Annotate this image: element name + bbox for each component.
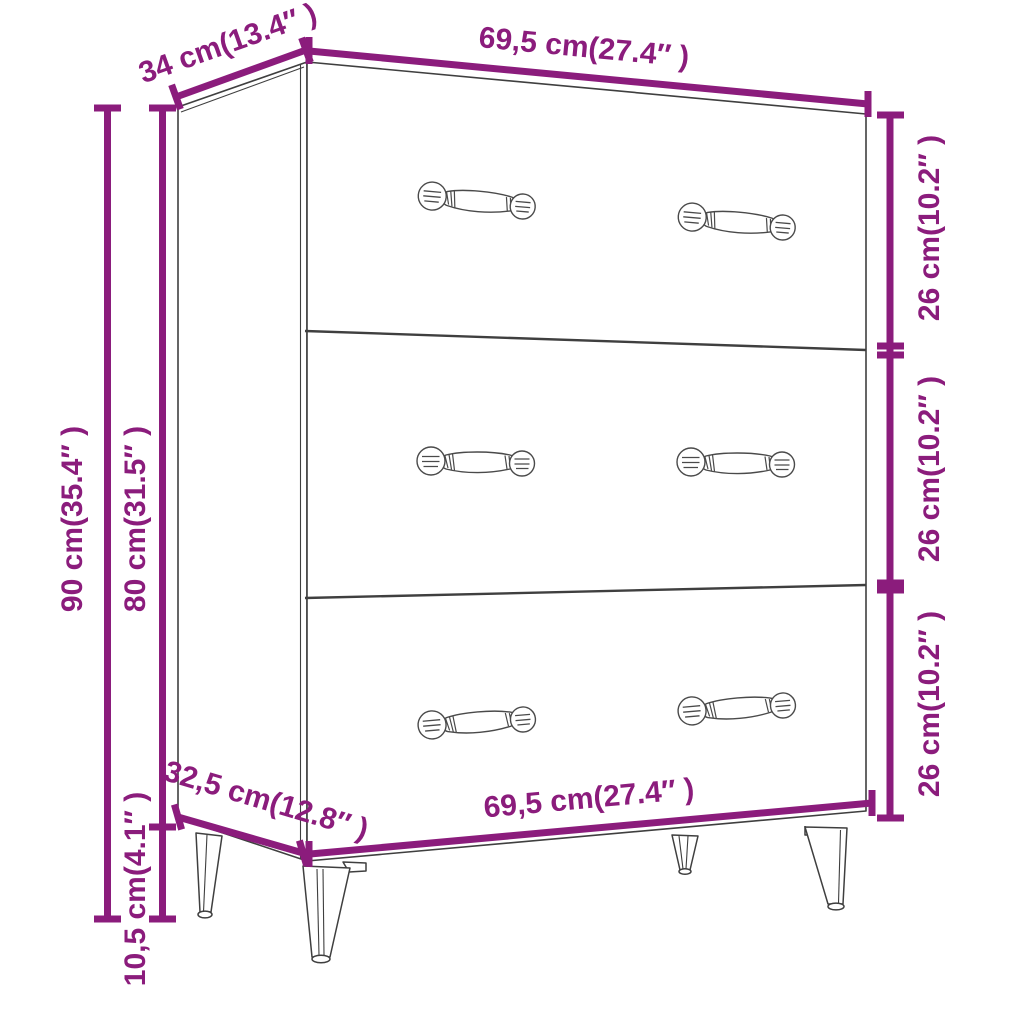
dim-label-leg-height: 10,5 cm(4.1″ ): [121, 792, 151, 986]
leg-back-right: [672, 835, 698, 874]
dim-line-drawer-heights: [877, 115, 904, 818]
leg-back-left: [196, 833, 222, 918]
leg-front-right: [805, 826, 847, 910]
dim-label-drawer-3: 26 cm(10.2″ ): [915, 611, 945, 797]
leg-front-left: [303, 862, 366, 963]
drawer-handle-middle-right: [677, 448, 795, 477]
dimension-diagram: 34 cm(13.4″ ) 69,5 cm(27.4″ ) 26 cm(10.2…: [0, 0, 1024, 1024]
dim-label-body-height: 80 cm(31.5″ ): [121, 426, 151, 612]
dim-line-body-and-leg-height: [149, 108, 176, 919]
line-art: [0, 0, 1024, 1024]
cabinet-side-panel: [178, 62, 307, 861]
dim-label-drawer-2: 26 cm(10.2″ ): [915, 376, 945, 562]
drawer-handle-middle-left: [417, 447, 535, 476]
dim-line-total-height: [94, 108, 121, 919]
dim-label-drawer-1: 26 cm(10.2″ ): [915, 135, 945, 321]
dim-label-total-height: 90 cm(35.4″ ): [58, 426, 88, 612]
